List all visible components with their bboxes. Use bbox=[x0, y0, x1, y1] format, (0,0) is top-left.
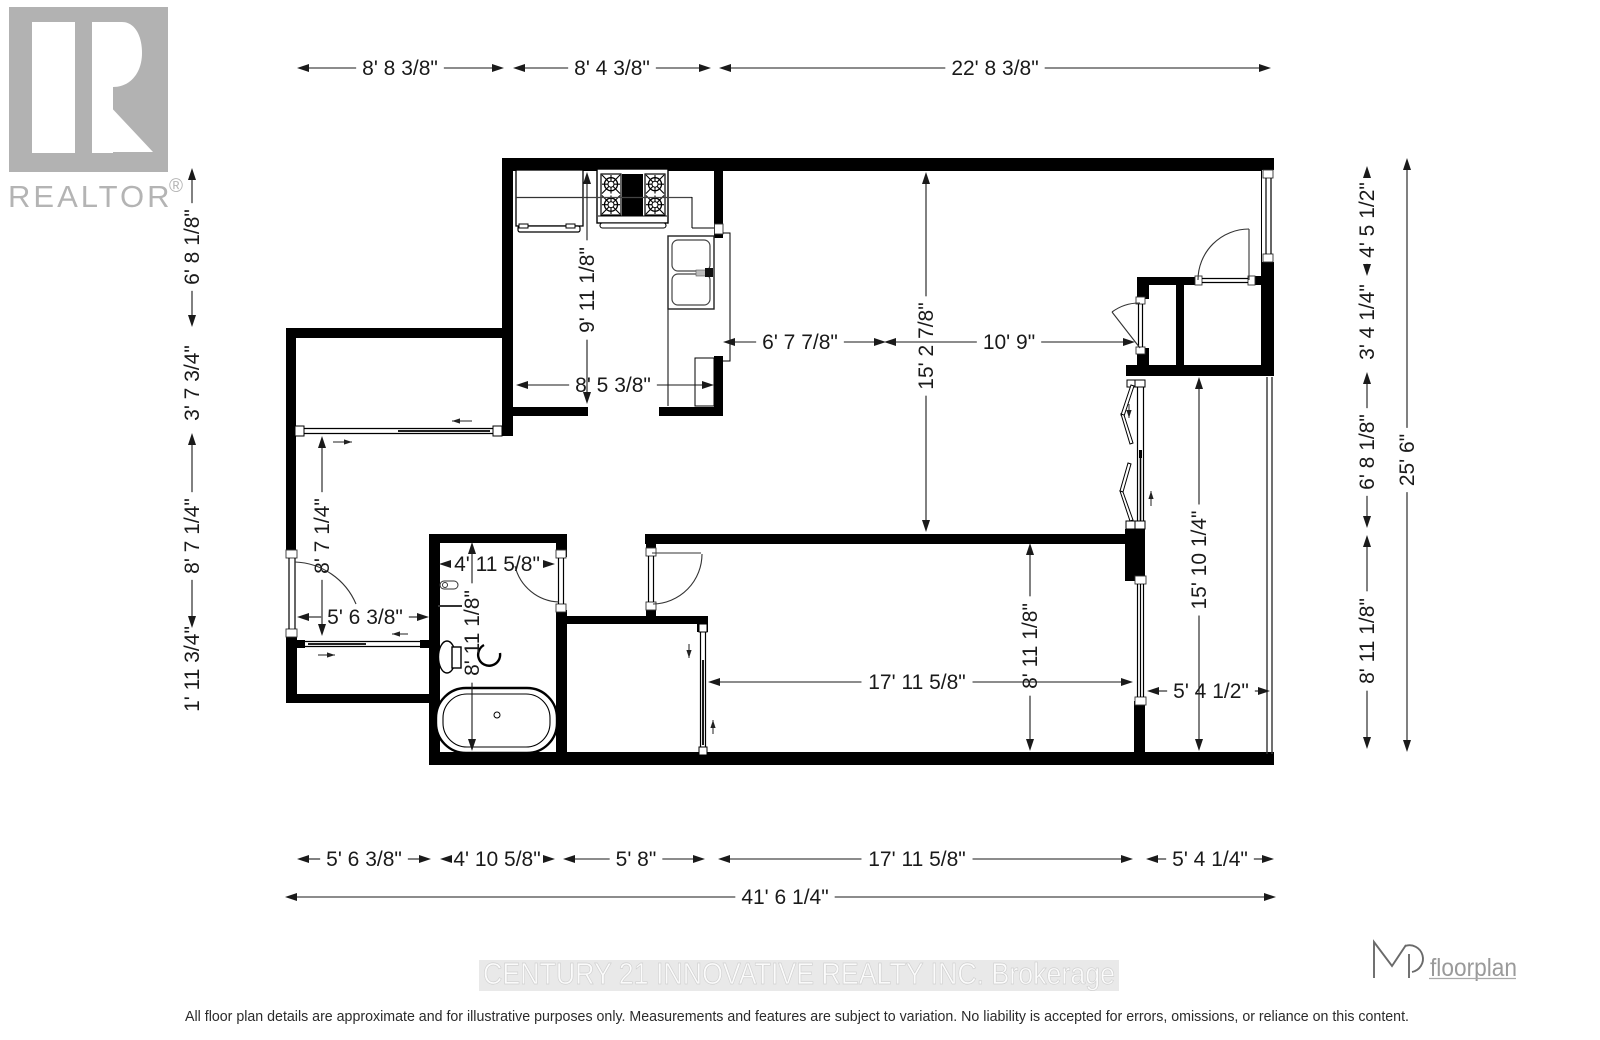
svg-text:All floor plan details are app: All floor plan details are approximate a… bbox=[185, 1009, 1409, 1025]
svg-text:17' 11 5/8": 17' 11 5/8" bbox=[868, 848, 965, 871]
svg-text:CENTURY 21 INNOVATIVE REALTY I: CENTURY 21 INNOVATIVE REALTY INC. Broker… bbox=[483, 956, 1115, 991]
svg-text:25' 6": 25' 6" bbox=[1396, 434, 1419, 486]
svg-text:8' 7 1/4": 8' 7 1/4" bbox=[181, 498, 204, 574]
svg-text:6' 8 1/8": 6' 8 1/8" bbox=[181, 209, 204, 285]
svg-text:4' 10 5/8": 4' 10 5/8" bbox=[453, 848, 540, 871]
svg-text:4' 11 5/8": 4' 11 5/8" bbox=[454, 553, 540, 576]
svg-text:5' 6 3/8": 5' 6 3/8" bbox=[326, 848, 402, 871]
svg-text:8' 11 1/8": 8' 11 1/8" bbox=[1356, 598, 1379, 684]
svg-text:8' 5 3/8": 8' 5 3/8" bbox=[575, 374, 651, 397]
svg-text:41' 6 1/4": 41' 6 1/4" bbox=[741, 886, 828, 909]
svg-text:15' 10 1/4": 15' 10 1/4" bbox=[1188, 510, 1211, 609]
svg-text:1' 11 3/4": 1' 11 3/4" bbox=[181, 626, 204, 712]
svg-text:8' 11 1/8": 8' 11 1/8" bbox=[1019, 603, 1042, 689]
svg-text:5' 8": 5' 8" bbox=[616, 848, 657, 871]
svg-text:5' 4 1/2": 5' 4 1/2" bbox=[1173, 680, 1249, 703]
svg-text:3' 7 3/4": 3' 7 3/4" bbox=[181, 345, 204, 421]
svg-text:4' 5 1/2": 4' 5 1/2" bbox=[1356, 182, 1379, 258]
svg-text:8' 4 3/8": 8' 4 3/8" bbox=[574, 57, 650, 80]
svg-text:8' 7 1/4": 8' 7 1/4" bbox=[311, 498, 334, 574]
svg-text:3' 4 1/4": 3' 4 1/4" bbox=[1356, 284, 1379, 360]
svg-text:®: ® bbox=[169, 176, 183, 197]
svg-text:6' 7 7/8": 6' 7 7/8" bbox=[762, 331, 838, 354]
svg-text:floorplan: floorplan bbox=[1430, 954, 1517, 982]
svg-text:6' 8 1/8": 6' 8 1/8" bbox=[1356, 414, 1379, 490]
svg-text:9' 11 1/8": 9' 11 1/8" bbox=[576, 247, 599, 333]
svg-text:5' 4 1/4": 5' 4 1/4" bbox=[1172, 848, 1248, 871]
svg-text:17' 11 5/8": 17' 11 5/8" bbox=[868, 671, 965, 694]
svg-text:22' 8 3/8": 22' 8 3/8" bbox=[951, 57, 1038, 80]
svg-text:8' 8 3/8": 8' 8 3/8" bbox=[362, 57, 438, 80]
svg-text:8' 11 1/8": 8' 11 1/8" bbox=[461, 590, 484, 676]
svg-text:5' 6 3/8": 5' 6 3/8" bbox=[327, 606, 403, 629]
svg-text:REALTOR: REALTOR bbox=[8, 179, 173, 214]
svg-text:15' 2 7/8": 15' 2 7/8" bbox=[915, 302, 938, 389]
svg-text:10' 9": 10' 9" bbox=[983, 331, 1035, 354]
